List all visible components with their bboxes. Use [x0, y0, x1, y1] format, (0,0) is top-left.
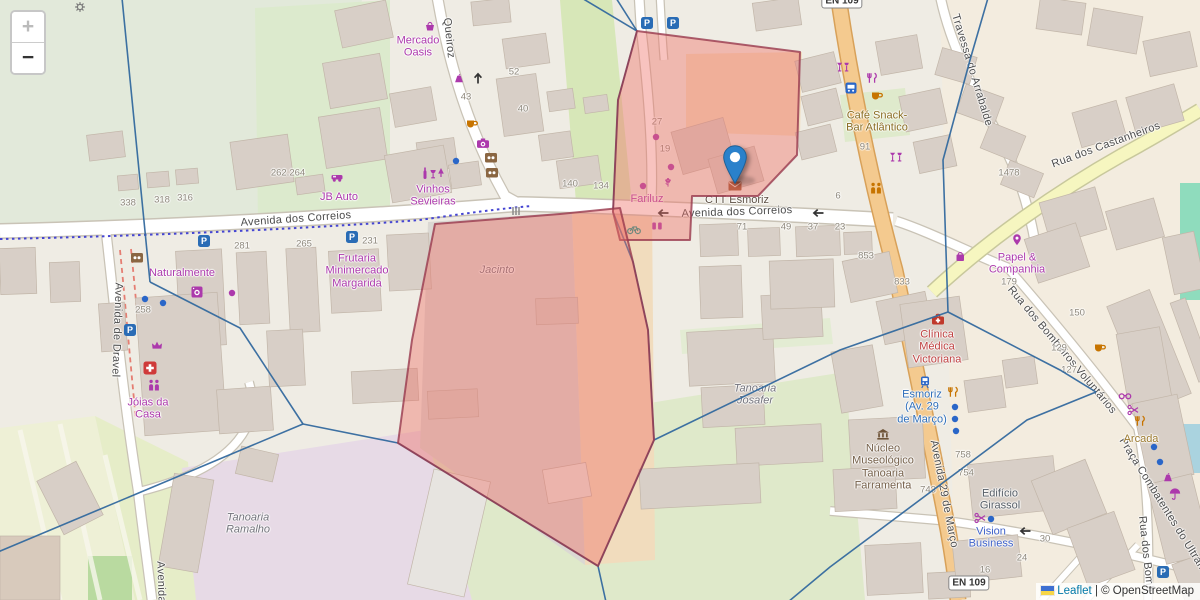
housenumber-label: 262.264	[271, 168, 305, 179]
place-label: Esmoriz (Av. 29 de Março)	[897, 389, 947, 426]
housenumber-label: 265	[296, 239, 312, 250]
street-name-label: Queiroz	[441, 17, 457, 59]
zoom-in-button[interactable]: +	[12, 12, 44, 43]
housenumber-label: 150	[1069, 308, 1085, 319]
street-name-label: Praça Combatentes do Ultram	[1117, 436, 1200, 575]
housenumber-label: 16	[980, 565, 991, 576]
housenumber-label: 23	[835, 222, 846, 233]
place-label: Tanoaria Ramalho	[226, 512, 270, 537]
housenumber-label: 1478	[998, 168, 1019, 179]
street-name-label: Travessa do Arrabalde	[949, 13, 995, 128]
leaflet-link[interactable]: Leaflet	[1057, 585, 1092, 597]
housenumber-label: 318	[154, 195, 170, 206]
zoom-out-button[interactable]: −	[12, 43, 44, 73]
housenumber-label: 758	[955, 450, 971, 461]
housenumber-label: 49	[781, 222, 792, 233]
place-label: Mercado Oasis	[397, 35, 440, 60]
housenumber-label: 127	[1061, 365, 1077, 376]
attribution-separator: |	[1092, 585, 1101, 597]
housenumber-label: 140	[562, 179, 578, 190]
street-name-label: Rua dos Bombeiros Voluntários	[1005, 284, 1119, 416]
housenumber-label: 853	[858, 251, 874, 262]
place-label: CTT Esmoriz	[705, 194, 769, 206]
place-label: Naturalmente	[149, 267, 215, 279]
place-label: Frutaria Minimercado Margarida	[326, 253, 389, 290]
housenumber-label: 281	[234, 241, 250, 252]
housenumber-label: 24	[1017, 553, 1028, 564]
street-name-label: Avenida de Dravel	[109, 282, 124, 377]
street-name-label: Rua dos Castanheiros	[1050, 120, 1162, 171]
housenumber-label: 833	[894, 277, 910, 288]
housenumber-label: 43	[461, 92, 472, 103]
housenumber-label: 179	[1001, 277, 1017, 288]
place-label: Vinhos Sevieiras	[410, 184, 455, 209]
housenumber-label: 52	[509, 67, 520, 78]
place-label: Vision Business	[969, 526, 1014, 551]
housenumber-label: 743	[920, 485, 936, 496]
place-label: Fariluz	[630, 193, 663, 205]
place-label: Arcada	[1124, 433, 1159, 445]
road-shield: EN 109	[821, 0, 862, 9]
housenumber-label: 754	[958, 468, 974, 479]
place-label: Papel & Companhia	[989, 252, 1045, 277]
ukraine-flag-icon	[1041, 586, 1054, 595]
housenumber-label: 40	[518, 104, 529, 115]
place-label: Clínica Médica Victoriana	[913, 329, 962, 366]
map-marker[interactable]	[723, 145, 747, 184]
housenumber-label: 71	[737, 222, 748, 233]
street-name-label: Avenida dos Correios	[681, 204, 792, 220]
map-labels-layer: QueirozAvenida dos CorreiosAvenida dos C…	[0, 0, 1200, 600]
zoom-control: + −	[10, 10, 46, 75]
place-label: Jacinto	[480, 264, 515, 276]
street-name-label: Rua dos Bomb	[1136, 515, 1156, 592]
place-label: Café Snack- Bar Atlântico	[846, 110, 908, 135]
attribution-bar: Leaflet | © OpenStreetMap	[1036, 583, 1200, 600]
housenumber-label: 30	[1040, 534, 1051, 545]
housenumber-label: 338	[120, 198, 136, 209]
housenumber-label: 231	[362, 236, 378, 247]
place-label: JB Auto	[320, 191, 358, 203]
housenumber-label: 134	[593, 181, 609, 192]
place-label: Núcleo Museológico Tanoaria Farramenta	[852, 442, 914, 491]
osm-attribution: © OpenStreetMap	[1101, 585, 1194, 597]
street-name-label: Avenida dos Correios	[240, 209, 352, 229]
housenumber-label: 258	[135, 305, 151, 316]
housenumber-label: 37	[808, 222, 819, 233]
road-shield: EN 109	[948, 576, 989, 591]
street-name-label: Avenida 29 de Março	[928, 439, 961, 549]
housenumber-label: 6	[835, 191, 840, 202]
place-label: Edifício Girassol	[980, 488, 1020, 513]
housenumber-label: 19	[660, 144, 671, 155]
map-canvas[interactable]: PPPPPP QueirozAvenida dos CorreiosAvenid…	[0, 0, 1200, 600]
housenumber-label: 129	[1051, 343, 1067, 354]
place-label: Tanoaria Josafer	[734, 383, 776, 408]
housenumber-label: 27	[652, 117, 663, 128]
housenumber-label: 91	[860, 142, 871, 153]
housenumber-label: 316	[177, 193, 193, 204]
street-name-label: Avenida	[154, 561, 167, 600]
place-label: Jóias da Casa	[128, 397, 169, 422]
